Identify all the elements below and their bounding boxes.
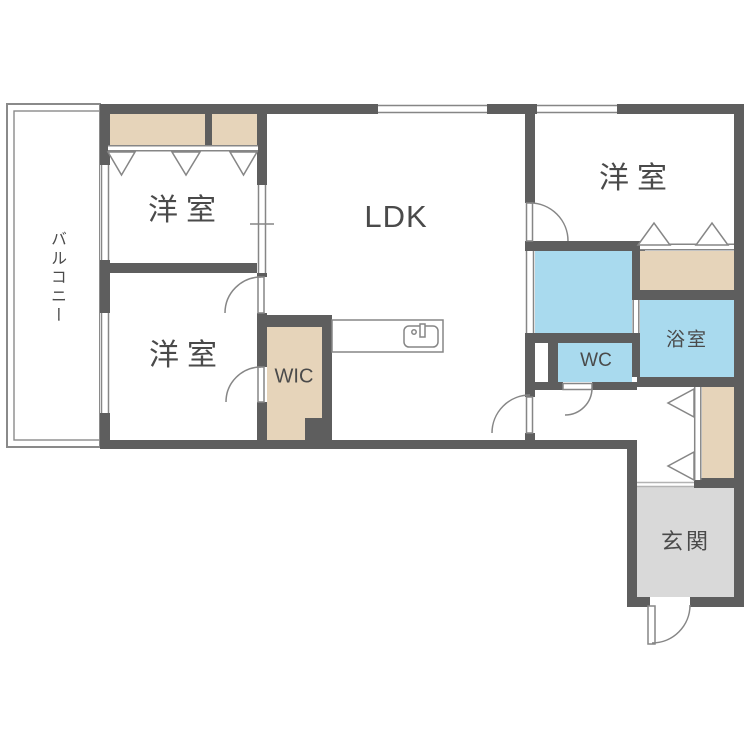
- floorplan-drawing: [0, 0, 750, 750]
- wic-label: WIC: [275, 366, 314, 389]
- wall-top-right: [617, 104, 744, 114]
- door-leaf-room2: [258, 277, 264, 313]
- wall-wic-notch: [305, 418, 332, 449]
- washroom-floor: [535, 251, 632, 333]
- kitchen: [332, 320, 443, 352]
- door-arc-entrance: [652, 605, 690, 643]
- wall-wc-bottom-b: [592, 382, 637, 390]
- door-leaf-wc: [563, 384, 592, 390]
- bifold-triangle-icon: [668, 452, 694, 480]
- wall-closet-divider: [205, 114, 212, 145]
- door-gap-entrance: [650, 597, 690, 607]
- wall-room2-right-b: [257, 313, 267, 367]
- wall-room1-room2: [100, 263, 267, 273]
- hanger-triangle-icon: [696, 223, 728, 245]
- wall-bath-bottom: [637, 377, 744, 387]
- room1-label: 洋室: [140, 185, 224, 229]
- door-arc-wc: [565, 388, 592, 415]
- wall-room2-right-c: [257, 402, 267, 449]
- room3-closet: [640, 251, 734, 290]
- room1-closet-right: [212, 114, 258, 145]
- hanger-triangle-icon: [230, 152, 257, 175]
- wall-wc-bottom-a: [535, 382, 563, 390]
- bifold-triangle-icon: [668, 389, 694, 417]
- door-arc-room3: [530, 203, 568, 241]
- wall-washroom-bottom: [535, 333, 640, 343]
- door-leaf-wic: [258, 367, 264, 402]
- door-leaf-entrance: [648, 606, 655, 644]
- door-arc-room2: [225, 277, 261, 313]
- door-arc-hallway: [492, 395, 530, 433]
- door-leaf-hallway: [527, 397, 533, 433]
- wall-top-left: [100, 104, 378, 114]
- hanger-triangle-icon: [172, 152, 200, 175]
- wall-ldk-right-c: [525, 333, 535, 397]
- wall-genkan-left: [627, 440, 637, 607]
- hall-closet: [702, 387, 734, 480]
- door-leaf-room3: [527, 203, 533, 241]
- room3-label: 洋室: [591, 153, 675, 197]
- balcony-label: バルコニー: [44, 231, 68, 326]
- door-arc-wic: [226, 367, 261, 402]
- genkan-label: 玄関: [661, 524, 711, 556]
- wall-room1-right-a: [257, 104, 267, 185]
- ldk-label: LDK: [364, 199, 427, 235]
- room2-label: 洋室: [141, 330, 225, 374]
- wall-bath-top: [637, 290, 744, 300]
- wall-bottom: [100, 440, 637, 449]
- entrance-step: [637, 483, 694, 487]
- hanger-triangle-icon: [638, 223, 670, 245]
- wall-right: [734, 104, 744, 607]
- faucet-icon: [420, 324, 425, 337]
- floorplan: 洋室 洋室 洋室 LDK WIC WC 浴室 玄関 バルコニー: [0, 0, 750, 750]
- hanger-triangle-icon: [108, 152, 135, 175]
- room1-closet-left: [110, 114, 205, 145]
- bath-label: 浴室: [666, 325, 708, 352]
- wall-ldk-right-d: [525, 433, 535, 449]
- wall-room3-bottom: [525, 241, 645, 251]
- wall-ldk-right-a: [525, 104, 535, 203]
- wc-label: WC: [580, 350, 612, 372]
